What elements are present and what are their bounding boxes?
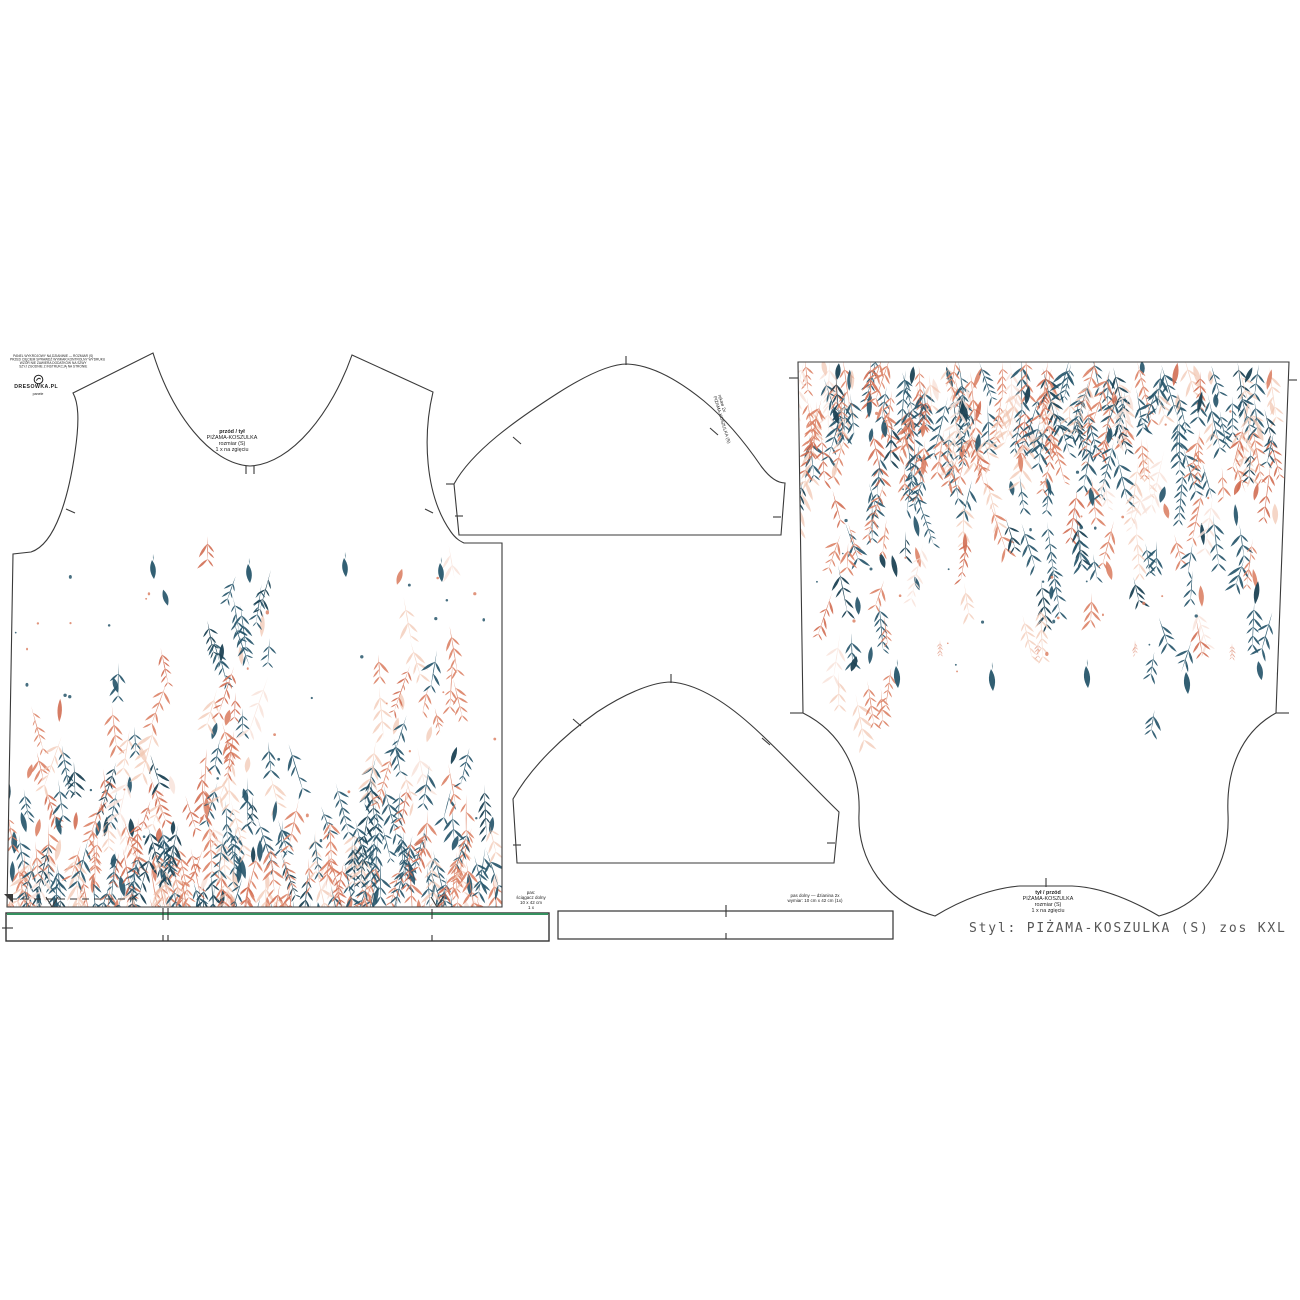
leaf-motif xyxy=(1144,710,1161,740)
brand-sub: panele xyxy=(18,392,58,396)
leaf-motif xyxy=(1175,641,1193,672)
leaf-motif xyxy=(956,670,958,672)
leaf-motif xyxy=(441,764,463,817)
leaf-motif xyxy=(1227,423,1245,474)
leaf-motif xyxy=(446,599,449,602)
leaf-motif xyxy=(822,634,846,689)
leaf-motif xyxy=(31,706,49,756)
sleeve-piece-1-outline xyxy=(454,364,785,535)
leaf-motif xyxy=(1183,446,1205,501)
leaf-motif xyxy=(21,812,27,832)
leaf-motif xyxy=(812,593,833,641)
leaf-motif xyxy=(90,789,92,791)
front-hem-corner-mark xyxy=(4,894,13,903)
leaf-motif xyxy=(1094,445,1097,448)
leaf-motif xyxy=(1267,369,1273,390)
leaf-motif xyxy=(224,710,230,726)
leaf-motif xyxy=(69,622,71,624)
leaf-motif xyxy=(247,667,249,670)
leaf-motif xyxy=(143,835,146,838)
leaf-motif xyxy=(153,554,154,561)
leaf-motif xyxy=(1229,410,1231,412)
leaf-motif xyxy=(236,677,268,740)
leaf-motif xyxy=(1079,525,1082,529)
leaf-motif xyxy=(239,777,254,835)
leaf-motif xyxy=(1102,613,1104,616)
leaf-motif xyxy=(434,617,437,620)
leaf-motif xyxy=(954,538,971,585)
leaf-motif xyxy=(150,560,156,579)
leaf-motif xyxy=(974,368,982,389)
leaf-motif xyxy=(983,473,1007,533)
leaf-motif xyxy=(877,396,899,449)
leaf-motif xyxy=(868,647,873,665)
leaf-motif xyxy=(992,662,993,670)
leaf-motif xyxy=(1025,386,1031,405)
leaf-motif xyxy=(373,654,389,684)
leaf-motif xyxy=(891,555,897,577)
leaf-motif xyxy=(411,748,437,796)
leaf-motif xyxy=(128,818,134,837)
leaf-motif xyxy=(104,705,124,758)
print-info-block: PANEL WYKROJOWY NA DZIANINIE — ROZMIAR (… xyxy=(10,354,96,369)
leaf-motif xyxy=(1052,620,1055,624)
leaf-motif xyxy=(197,749,212,799)
leaf-motif xyxy=(360,655,363,658)
leaf-motif xyxy=(143,681,171,736)
leaf-motif xyxy=(1041,522,1059,580)
leaf-motif xyxy=(311,697,313,699)
leaf-motif xyxy=(1172,363,1178,386)
leaf-motif xyxy=(1042,581,1044,583)
leaf-motif xyxy=(997,362,1009,403)
leaf-motif xyxy=(904,557,906,559)
leaf-motif xyxy=(280,800,304,853)
leaf-print-back xyxy=(781,355,1284,754)
leaf-motif xyxy=(910,366,915,384)
leaf-motif xyxy=(989,669,995,691)
leaf-motif xyxy=(159,648,174,688)
leaf-motif xyxy=(816,581,818,583)
leaf-motif xyxy=(1084,666,1090,688)
leaf-motif xyxy=(902,488,904,490)
leaf-motif xyxy=(182,795,201,837)
leaf-motif xyxy=(1173,470,1188,527)
leaf-motif xyxy=(442,545,460,582)
leaf-motif xyxy=(426,726,432,742)
leaf-motif xyxy=(104,790,107,793)
leaf-motif xyxy=(249,558,250,565)
leaf-motif xyxy=(123,788,125,790)
leaf-motif xyxy=(25,683,28,687)
leaf-motif xyxy=(1129,577,1150,610)
leaf-motif xyxy=(1086,554,1103,583)
leaf-motif xyxy=(157,835,159,837)
leaf-motif xyxy=(382,827,397,864)
leaf-motif xyxy=(1186,490,1203,547)
leaf-motif xyxy=(257,840,263,862)
back-piece-label: tył / przód PIŻAMA-KOSZULKA rozmiar (S) … xyxy=(1000,889,1096,913)
leaf-motif xyxy=(119,876,126,897)
leaf-motif xyxy=(1018,475,1031,515)
leaf-motif xyxy=(246,564,252,583)
band-note: pas dolny — dzianina 2x wymiar: 10 cm x … xyxy=(770,893,860,903)
leaf-motif xyxy=(862,482,887,543)
leaf-motif xyxy=(1209,366,1228,401)
leaf-motif xyxy=(894,666,900,688)
brand-name: DRESOWKA.PL xyxy=(8,384,64,390)
leaf-motif xyxy=(266,610,269,614)
leaf-motif xyxy=(216,777,219,780)
leaf-motif xyxy=(829,672,846,712)
info-line: SZYJ ZGODNIE Z INSTRUKCJĄ NA STRONIE xyxy=(10,365,96,369)
leaf-motif xyxy=(850,656,857,671)
leaf-motif xyxy=(433,708,444,736)
leaf-motif xyxy=(68,695,71,698)
leaf-motif xyxy=(897,659,898,667)
leaf-motif xyxy=(1057,617,1060,620)
front-label-line: 1 x na zgięciu xyxy=(196,446,268,452)
leaf-motif xyxy=(442,691,444,693)
leaf-motif xyxy=(1199,585,1204,606)
leaf-motif xyxy=(229,692,241,722)
left-band-note-line: 1 x xyxy=(498,905,564,910)
leaf-motif xyxy=(1207,497,1209,500)
leaf-motif xyxy=(979,362,997,406)
leaf-motif xyxy=(273,801,278,823)
leaf-motif xyxy=(877,519,889,560)
leaf-motif xyxy=(1021,524,1042,577)
leaf-motif xyxy=(981,621,984,624)
leaf-motif xyxy=(1080,515,1082,517)
leaf-motif xyxy=(493,738,496,741)
leaf-motif xyxy=(1281,617,1283,619)
leaf-motif xyxy=(1218,468,1232,503)
leaf-motif xyxy=(108,624,111,627)
leaf-motif xyxy=(348,790,351,793)
leaf-motif xyxy=(260,638,276,668)
leaf-motif xyxy=(219,644,224,662)
leaf-motif xyxy=(822,534,841,574)
leaf-motif xyxy=(855,597,860,615)
waistband-strip-left xyxy=(6,913,549,941)
leaf-motif xyxy=(1029,528,1032,531)
leaf-motif xyxy=(1195,614,1198,617)
leaf-motif xyxy=(852,619,855,622)
leaf-motif xyxy=(947,643,949,645)
leaf-motif xyxy=(441,557,442,564)
leaf-motif xyxy=(1106,561,1113,580)
leaf-motif xyxy=(831,491,846,529)
leaf-motif xyxy=(1253,483,1258,500)
leaf-motif xyxy=(277,758,280,761)
leaf-motif xyxy=(875,412,878,415)
leaf-motif xyxy=(868,580,886,613)
leaf-motif xyxy=(1246,601,1263,653)
leaf-motif xyxy=(844,519,847,522)
leaf-motif xyxy=(961,583,975,625)
leaf-motif xyxy=(261,742,280,779)
leaf-motif xyxy=(990,503,1016,563)
leaf-motif xyxy=(73,812,77,830)
leaf-motif xyxy=(1005,517,1022,554)
leaf-motif xyxy=(914,516,920,537)
leaf-motif xyxy=(1163,503,1169,518)
leaf-motif xyxy=(1076,471,1079,474)
leaf-motif xyxy=(358,741,383,806)
leaf-motif xyxy=(1159,618,1177,655)
leaf-motif xyxy=(1234,480,1241,495)
leaf-motif xyxy=(890,440,893,444)
leaf-motif xyxy=(1132,640,1138,657)
leaf-motif xyxy=(1040,481,1042,483)
leaf-motif xyxy=(208,739,223,776)
leaf-motif xyxy=(390,739,408,778)
leaf-motif xyxy=(1051,576,1054,579)
leaf-motif xyxy=(1270,402,1275,416)
leaf-motif xyxy=(1226,436,1229,439)
leaf-motif xyxy=(220,576,236,606)
leaf-motif xyxy=(57,699,61,722)
leaf-motif xyxy=(149,755,170,796)
leaf-motif xyxy=(453,679,469,723)
leaf-motif xyxy=(421,650,441,693)
leaf-motif xyxy=(1094,526,1097,529)
leaf-motif xyxy=(288,744,312,800)
leaf-motif xyxy=(473,592,476,595)
leaf-motif xyxy=(1114,453,1136,508)
leaf-motif xyxy=(54,864,67,898)
leaf-motif xyxy=(815,433,832,489)
leaf-motif xyxy=(396,569,402,585)
leaf-motif xyxy=(69,575,72,579)
leaf-motif xyxy=(386,702,388,704)
leaf-motif xyxy=(1121,516,1124,519)
leaf-motif xyxy=(57,745,75,797)
leaf-motif xyxy=(63,694,66,697)
leaf-motif xyxy=(1229,643,1236,661)
leaf-motif xyxy=(409,750,411,752)
leaf-motif xyxy=(1184,672,1190,694)
leaf-motif xyxy=(150,847,153,850)
leaf-motif xyxy=(948,568,950,570)
leaf-motif xyxy=(26,648,28,651)
leaf-motif xyxy=(1143,652,1158,685)
leaf-motif xyxy=(438,563,444,582)
leaf-motif xyxy=(320,839,323,842)
leaf-motif xyxy=(1225,558,1249,595)
leaf-motif xyxy=(921,454,926,476)
leaf-motif xyxy=(15,632,17,634)
sleeve-piece-2-outline xyxy=(513,682,839,863)
leaf-motif xyxy=(37,622,39,624)
leaf-motif xyxy=(1087,659,1088,667)
leaf-motif xyxy=(1142,602,1145,605)
leaf-motif xyxy=(1149,644,1151,646)
leaf-motif xyxy=(909,426,911,428)
leaf-motif xyxy=(273,733,276,736)
pattern-sheet: PANEL WYKROJOWY NA DZIANINIE — ROZMIAR (… xyxy=(0,0,1300,1300)
leaf-motif xyxy=(67,762,86,799)
leaf-motif xyxy=(35,819,41,837)
leaf-motif xyxy=(156,768,158,770)
leaf-motif xyxy=(1155,385,1175,426)
leaf-motif xyxy=(145,598,147,600)
leaf-motif xyxy=(82,794,105,848)
leaf-motif xyxy=(1161,595,1163,597)
leaf-motif xyxy=(200,817,203,820)
leaf-motif xyxy=(446,626,465,680)
left-band-note: pas: ściągacz dolny 10 x 42 cm 1 x xyxy=(498,890,564,910)
leaf-motif xyxy=(482,618,485,621)
leaf-motif xyxy=(937,640,944,657)
style-caption: Styl: PIŻAMA-KOSZULKA (S) zos KXL xyxy=(969,921,1287,936)
band-note-line: wymiar: 10 cm x 42 cm (1x) xyxy=(770,898,860,903)
leaf-motif xyxy=(1086,370,1112,428)
front-piece-label: przód / tył PIŻAMA-KOSZULKA rozmiar (S) … xyxy=(196,428,268,452)
leaf-motif xyxy=(1049,586,1053,600)
leaf-motif xyxy=(216,866,233,918)
leaf-motif xyxy=(475,817,477,819)
leaf-motif xyxy=(389,665,412,719)
leaf-motif xyxy=(443,809,464,843)
leaf-motif xyxy=(345,552,346,559)
leaf-motif xyxy=(452,836,459,851)
leaf-motif xyxy=(436,577,439,580)
leaf-motif xyxy=(197,536,214,568)
leaf-motif xyxy=(870,568,873,571)
leaf-motif xyxy=(879,668,896,712)
leaf-motif xyxy=(408,584,411,587)
leaf-motif xyxy=(1165,423,1167,425)
leaf-motif xyxy=(169,776,175,795)
leaf-motif xyxy=(163,590,169,606)
front-notches xyxy=(46,466,443,907)
leaf-motif xyxy=(1264,409,1276,445)
leaf-motif xyxy=(148,592,150,595)
leaf-motif xyxy=(471,847,492,904)
leaf-motif xyxy=(451,747,457,764)
leaf-motif xyxy=(1045,652,1048,656)
leaf-motif xyxy=(955,664,957,666)
leaf-motif xyxy=(55,839,61,861)
leaf-motif xyxy=(1257,661,1263,680)
leaf-motif xyxy=(899,531,912,564)
leaf-motif xyxy=(342,558,348,577)
leaf-motif xyxy=(1086,580,1088,582)
leaf-motif xyxy=(1081,593,1101,631)
leaf-motif xyxy=(459,794,475,849)
leaf-motif xyxy=(245,757,251,773)
back-label-line: 1 x na zgięciu xyxy=(1000,907,1096,913)
leaf-motif xyxy=(874,603,889,654)
leaf-motif xyxy=(842,553,844,555)
leaf-motif xyxy=(1280,657,1281,665)
leaf-motif xyxy=(260,614,265,637)
leaf-motif xyxy=(1272,504,1278,525)
leaf-motif xyxy=(372,686,392,743)
leaf-motif xyxy=(306,814,309,818)
leaf-motif xyxy=(1201,463,1216,500)
leaf-motif xyxy=(1050,429,1070,485)
leaf-motif xyxy=(1234,504,1238,526)
leaf-motif xyxy=(1046,429,1048,431)
leaf-motif xyxy=(399,597,419,642)
leaf-motif xyxy=(899,594,902,597)
pattern-board xyxy=(0,0,1300,1300)
